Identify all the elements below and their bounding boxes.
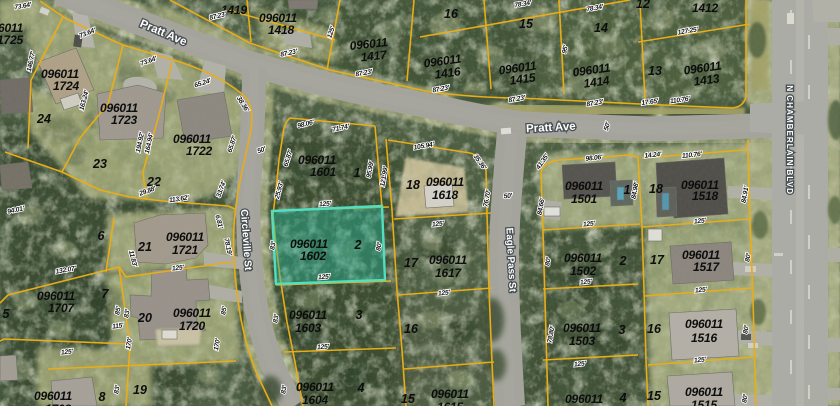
svg-text:1: 1 — [354, 166, 361, 180]
svg-text:7: 7 — [102, 287, 110, 301]
svg-text:1502: 1502 — [570, 264, 596, 278]
svg-text:19: 19 — [133, 383, 147, 397]
svg-text:24: 24 — [36, 112, 51, 126]
svg-text:5: 5 — [3, 307, 11, 321]
svg-text:15: 15 — [519, 17, 534, 31]
svg-text:1518: 1518 — [692, 189, 718, 203]
svg-text:18: 18 — [406, 178, 420, 192]
svg-text:17: 17 — [404, 256, 419, 270]
svg-text:096011: 096011 — [565, 392, 603, 406]
svg-text:1720: 1720 — [179, 319, 205, 333]
svg-text:2: 2 — [619, 254, 627, 268]
svg-text:1603: 1603 — [295, 321, 321, 335]
svg-text:096011: 096011 — [166, 230, 204, 244]
svg-text:096011: 096011 — [685, 317, 723, 331]
svg-text:N CHAMBERLAIN BLVD: N CHAMBERLAIN BLVD — [785, 85, 795, 195]
svg-text:125': 125' — [580, 278, 593, 286]
svg-text:20: 20 — [137, 311, 152, 325]
svg-text:12: 12 — [636, 0, 650, 11]
svg-text:096011: 096011 — [34, 389, 72, 403]
svg-text:1417: 1417 — [360, 48, 389, 65]
svg-text:096011: 096011 — [564, 251, 602, 265]
svg-text:1412: 1412 — [692, 1, 718, 15]
svg-text:1517: 1517 — [693, 260, 720, 274]
svg-text:13: 13 — [648, 64, 662, 78]
svg-text:14: 14 — [594, 21, 608, 35]
svg-text:1604: 1604 — [302, 393, 328, 406]
svg-text:1503: 1503 — [569, 334, 595, 348]
svg-text:096011: 096011 — [173, 306, 211, 320]
svg-text:16: 16 — [647, 322, 662, 336]
svg-text:125': 125' — [432, 220, 445, 228]
svg-text:1617: 1617 — [435, 266, 462, 280]
svg-text:1601: 1601 — [310, 165, 336, 179]
svg-text:4: 4 — [357, 381, 365, 395]
svg-text:1418: 1418 — [268, 23, 294, 37]
svg-text:096011: 096011 — [289, 308, 327, 322]
svg-text:096011: 096011 — [429, 253, 467, 267]
svg-text:096011: 096011 — [565, 179, 603, 193]
svg-text:125': 125' — [695, 286, 708, 294]
svg-text:17: 17 — [650, 253, 665, 267]
svg-text:15: 15 — [401, 392, 416, 406]
svg-text:125': 125' — [583, 220, 596, 228]
svg-text:1724: 1724 — [53, 79, 79, 93]
svg-text:1602: 1602 — [300, 249, 326, 263]
svg-text:1615: 1615 — [437, 400, 463, 406]
svg-text:125': 125' — [438, 289, 451, 297]
svg-text:125': 125' — [694, 217, 707, 225]
svg-text:096011: 096011 — [296, 380, 334, 394]
svg-text:1618: 1618 — [432, 188, 458, 202]
svg-text:1707: 1707 — [48, 301, 75, 315]
svg-text:15: 15 — [647, 389, 662, 403]
svg-text:1723: 1723 — [111, 113, 137, 127]
svg-text:1725: 1725 — [0, 33, 23, 47]
svg-text:21: 21 — [137, 240, 152, 254]
svg-text:1501: 1501 — [571, 192, 597, 206]
svg-text:16: 16 — [404, 322, 419, 336]
svg-text:125': 125' — [172, 264, 185, 272]
svg-text:1515: 1515 — [691, 398, 717, 406]
svg-text:1722: 1722 — [186, 144, 212, 158]
svg-text:16: 16 — [444, 7, 459, 21]
svg-text:096011: 096011 — [685, 385, 723, 399]
svg-text:3: 3 — [356, 308, 363, 322]
svg-text:18: 18 — [649, 182, 663, 196]
svg-text:6: 6 — [98, 229, 106, 243]
svg-text:096011: 096011 — [426, 175, 464, 189]
svg-text:4: 4 — [619, 391, 627, 405]
svg-text:50': 50' — [503, 193, 513, 201]
svg-text:125': 125' — [317, 344, 330, 352]
svg-text:125': 125' — [574, 360, 587, 368]
svg-text:096011: 096011 — [431, 387, 469, 401]
svg-text:125': 125' — [319, 201, 332, 209]
svg-text:2: 2 — [354, 238, 362, 252]
svg-text:125': 125' — [318, 274, 331, 282]
svg-text:1516: 1516 — [691, 331, 717, 345]
svg-text:1708: 1708 — [45, 402, 71, 406]
svg-text:1721: 1721 — [172, 243, 198, 257]
svg-text:125': 125' — [61, 348, 74, 356]
svg-text:3: 3 — [619, 323, 626, 337]
svg-text:125': 125' — [694, 356, 707, 364]
svg-text:1: 1 — [624, 183, 631, 197]
svg-text:8: 8 — [99, 390, 106, 404]
svg-text:23: 23 — [92, 157, 107, 171]
svg-text:096011: 096011 — [563, 321, 601, 335]
